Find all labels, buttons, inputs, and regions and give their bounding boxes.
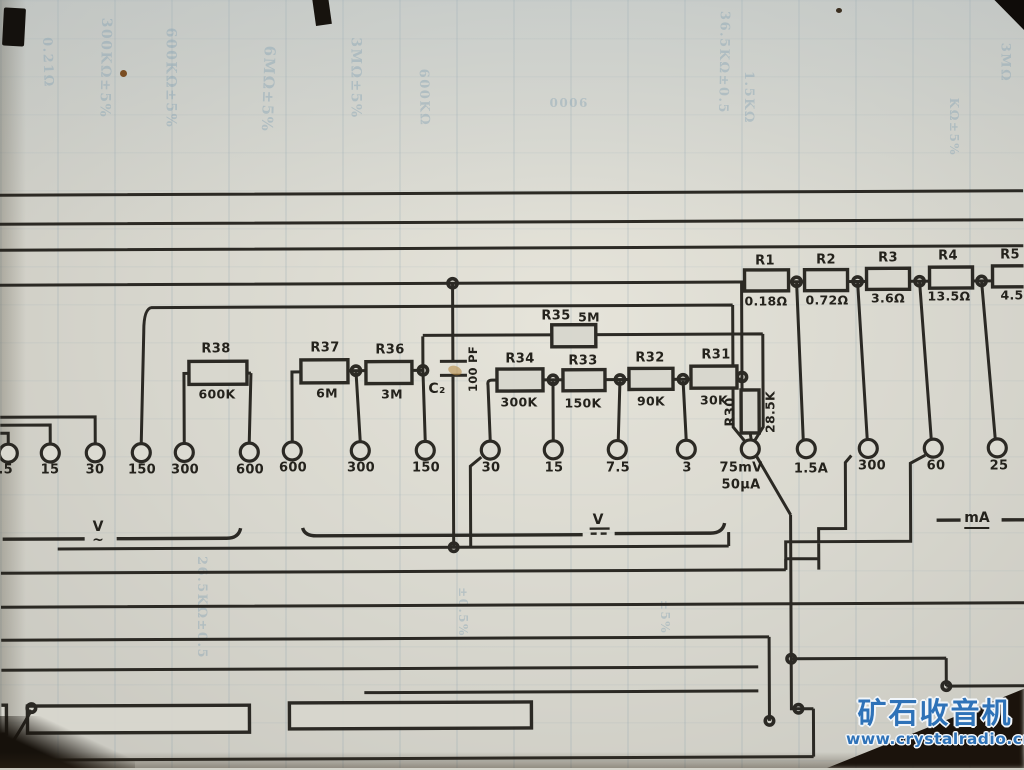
terminal-ac-30 — [86, 444, 104, 462]
terminal-ma-60 — [924, 439, 942, 457]
terminal-label-ac-30: 30 — [86, 463, 105, 478]
label-r2-val: 0.72Ω — [806, 293, 849, 308]
resistor-body-r4 — [929, 267, 972, 288]
label-c2-ref: C₂ — [428, 381, 445, 397]
label-r32-ref: R32 — [635, 351, 664, 366]
terminal-dc-7v5 — [608, 441, 626, 459]
label-r37-ref: R37 — [310, 341, 339, 356]
terminal-label-ac-600: 600 — [236, 463, 264, 478]
terminal-label-ac-300: 300 — [171, 463, 199, 478]
label-r2-ref: R2 — [816, 253, 836, 268]
terminal-label-meter-ua: 50µA — [722, 478, 761, 493]
terminal-label-ac-15: 15 — [41, 463, 60, 478]
label-c2-val: 100 PF — [466, 346, 480, 392]
junction-dots — [25, 276, 988, 728]
terminal-dc-3 — [677, 440, 695, 458]
photo-shadow-bottom-left — [0, 716, 135, 768]
terminal-label-1v5a: 1.5A — [794, 462, 828, 477]
terminal-ma-25 — [988, 439, 1006, 457]
label-r30-val: 28.5K — [763, 391, 778, 433]
terminal-dc-15 — [544, 441, 562, 459]
terminal-meter — [741, 440, 759, 458]
label-r33-ref: R33 — [568, 354, 597, 369]
terminal-label-ma-300: 300 — [858, 459, 886, 474]
resistor-body-r32 — [629, 368, 673, 389]
label-r37-val: 6M — [316, 386, 338, 401]
terminal-label-dc-30: 30 — [482, 461, 501, 476]
terminal-ma-300 — [859, 439, 877, 457]
terminal-label-ma-60: 60 — [927, 459, 946, 474]
label-r1-val: 0.18Ω — [745, 294, 788, 309]
resistor-body-r35 — [552, 325, 596, 347]
bracket-lines — [3, 520, 1024, 539]
resistor-body-r2 — [805, 270, 848, 291]
terminal-label-dc-150: 150 — [412, 461, 440, 476]
terminal-dc-30 — [481, 441, 499, 459]
photo-speck-dark — [836, 8, 842, 13]
terminal-label-dc-300: 300 — [347, 461, 375, 476]
label-r33-val: 150K — [565, 396, 602, 411]
label-r4-val: 13.5Ω — [928, 289, 971, 304]
photo-mark-top-center — [312, 0, 332, 26]
photo-speck-brown — [120, 70, 127, 77]
label-r34-val: 300K — [501, 395, 538, 410]
terminal-label-meter-mv: 75mV — [720, 461, 763, 476]
section-label-ma: mA — [964, 510, 989, 526]
terminal-dc-300 — [351, 442, 369, 460]
label-r5-val: 4.5 — [1000, 288, 1023, 303]
resistor-body-r33 — [563, 370, 605, 391]
terminal-label-dc-7v5: 7.5 — [606, 461, 630, 476]
terminal-label-dc-15: 15 — [545, 461, 564, 476]
label-r3-val: 3.6Ω — [871, 291, 905, 306]
terminal-label-dc-3: 3 — [682, 461, 691, 476]
resistor-body-r31 — [691, 366, 737, 388]
photo-mark-top-left — [2, 7, 26, 46]
terminal-ac-150 — [132, 444, 150, 462]
resistor-body-r1 — [745, 270, 789, 291]
label-r34-ref: R34 — [505, 352, 534, 367]
terminal-ac-600 — [240, 443, 258, 461]
label-r35-val: 5M — [578, 310, 600, 325]
schematic-ink — [0, 0, 1024, 770]
label-r32-val: 90K — [637, 394, 665, 409]
label-r36-val: 3M — [381, 387, 403, 402]
watermark-url: www.crystalradio.cn — [846, 731, 1024, 747]
terminal-label-ac-150: 150 — [128, 463, 156, 478]
terminal-dc-600 — [283, 442, 301, 460]
section-mark-ac-tilde: ~ — [92, 532, 104, 548]
resistor-body-bottom-right — [289, 702, 531, 729]
label-r30-ref: R30 — [724, 397, 739, 426]
watermark: 矿石收音机 www.crystalradio.cn — [846, 698, 1024, 748]
label-r3-ref: R3 — [878, 251, 898, 266]
label-r35-ref: R35 — [541, 309, 570, 324]
section-label-dc-volts: V — [593, 512, 604, 528]
label-r5-ref: R5 — [1000, 248, 1020, 263]
terminal-dc-150 — [416, 441, 434, 459]
terminal-1v5a — [797, 440, 815, 458]
ma-label-text: mA — [964, 510, 989, 529]
resistor-body-r36 — [366, 361, 412, 383]
terminal-label-dc-600: 600 — [279, 461, 307, 476]
terminal-ac-15 — [41, 444, 59, 462]
label-r38-ref: R38 — [201, 342, 230, 357]
resistor-body-r30 — [741, 390, 759, 433]
terminal-ac-7v5 — [0, 444, 17, 462]
dc-symbol — [590, 529, 610, 534]
resistor-body-r3 — [866, 268, 909, 289]
terminal-circles — [0, 439, 1006, 462]
label-r4-ref: R4 — [938, 249, 958, 264]
watermark-brand: 矿石收音机 — [846, 698, 1024, 728]
label-r36-ref: R36 — [375, 343, 404, 358]
resistor-body-r34 — [497, 369, 543, 391]
label-r1-ref: R1 — [755, 254, 775, 269]
label-r38-val: 600K — [199, 387, 236, 402]
resistor-body-r38 — [189, 361, 247, 384]
terminal-ac-300 — [175, 443, 193, 461]
label-r31-ref: R31 — [701, 348, 730, 363]
resistor-body-r37 — [301, 360, 348, 383]
c2-branch-wire — [440, 283, 468, 547]
terminal-label-ma-25: 25 — [990, 459, 1009, 474]
terminal-label-ac-7v5: 7.5 — [0, 463, 13, 478]
resistor-body-r5 — [992, 266, 1024, 287]
